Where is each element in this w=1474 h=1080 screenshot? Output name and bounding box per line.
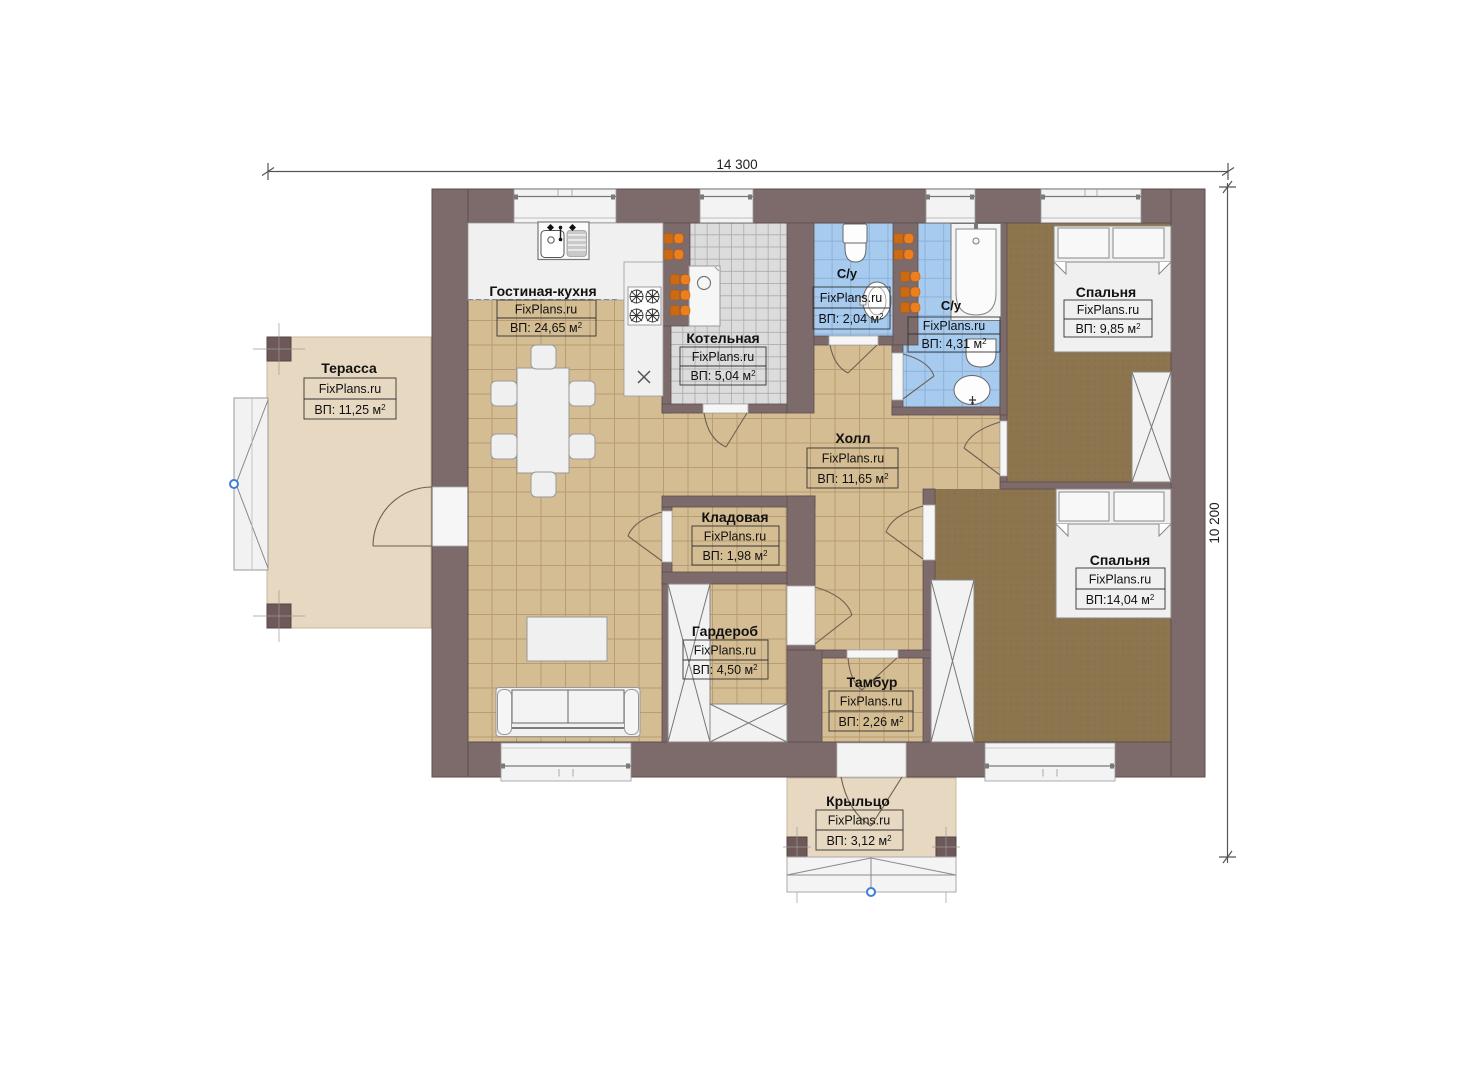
svg-text:ВП: 11,65 м2: ВП: 11,65 м2 <box>817 472 889 486</box>
svg-text:FixPlans.ru: FixPlans.ru <box>515 303 578 317</box>
svg-text:Гостиная-кухня: Гостиная-кухня <box>489 283 596 299</box>
svg-text:14 300: 14 300 <box>716 157 757 172</box>
svg-text:ВП: 3,12 м2: ВП: 3,12 м2 <box>826 834 892 848</box>
svg-text:ВП: 1,98 м2: ВП: 1,98 м2 <box>702 549 768 563</box>
svg-text:FixPlans.ru: FixPlans.ru <box>820 291 883 305</box>
svg-text:FixPlans.ru: FixPlans.ru <box>694 644 757 658</box>
svg-text:ВП: 2,26 м2: ВП: 2,26 м2 <box>838 715 904 729</box>
svg-text:С/у: С/у <box>941 298 962 313</box>
svg-text:ВП:14,04 м2: ВП:14,04 м2 <box>1086 593 1155 607</box>
svg-text:ВП: 2,04 м2: ВП: 2,04 м2 <box>818 312 884 326</box>
svg-text:ВП: 11,25 м2: ВП: 11,25 м2 <box>314 403 386 417</box>
svg-text:FixPlans.ru: FixPlans.ru <box>923 319 986 333</box>
svg-text:FixPlans.ru: FixPlans.ru <box>1089 573 1152 587</box>
svg-text:FixPlans.ru: FixPlans.ru <box>704 530 767 544</box>
svg-text:ВП: 4,31 м2: ВП: 4,31 м2 <box>921 337 987 351</box>
svg-text:FixPlans.ru: FixPlans.ru <box>1077 303 1140 317</box>
svg-text:ВП: 4,50 м2: ВП: 4,50 м2 <box>692 663 758 677</box>
svg-text:Тамбур: Тамбур <box>847 674 898 690</box>
svg-text:Кладовая: Кладовая <box>701 509 768 525</box>
svg-text:Гардероб: Гардероб <box>692 623 759 639</box>
svg-text:Спальня: Спальня <box>1090 552 1150 568</box>
svg-text:10 200: 10 200 <box>1207 502 1222 543</box>
svg-text:Терасса: Терасса <box>321 360 377 376</box>
svg-text:FixPlans.ru: FixPlans.ru <box>840 695 903 709</box>
svg-text:Спальня: Спальня <box>1076 284 1136 300</box>
svg-text:Котельная: Котельная <box>686 330 759 346</box>
svg-text:С/у: С/у <box>837 266 858 281</box>
svg-text:FixPlans.ru: FixPlans.ru <box>828 814 891 828</box>
svg-text:FixPlans.ru: FixPlans.ru <box>692 350 755 364</box>
svg-text:ВП: 9,85 м2: ВП: 9,85 м2 <box>1075 322 1141 336</box>
svg-text:FixPlans.ru: FixPlans.ru <box>822 452 885 466</box>
svg-text:ВП: 24,65 м2: ВП: 24,65 м2 <box>510 321 583 335</box>
svg-text:Холл: Холл <box>835 430 870 446</box>
svg-text:Крыльцо: Крыльцо <box>826 793 890 809</box>
svg-text:ВП: 5,04 м2: ВП: 5,04 м2 <box>690 369 756 383</box>
svg-text:FixPlans.ru: FixPlans.ru <box>319 382 382 396</box>
